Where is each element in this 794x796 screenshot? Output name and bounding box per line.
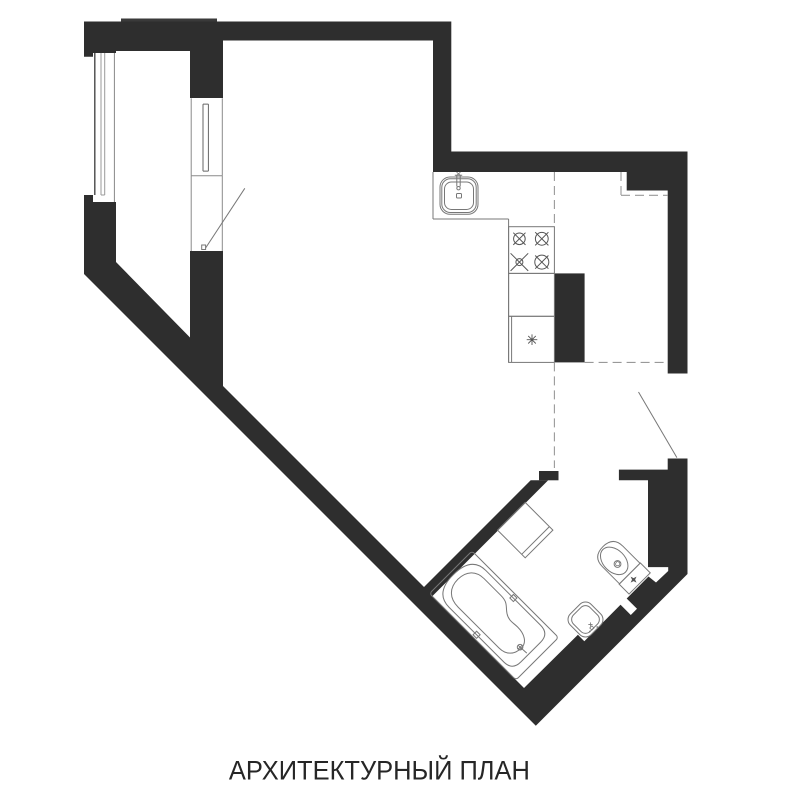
svg-text:АРХИТЕКТУРНЫЙ ПЛАН: АРХИТЕКТУРНЫЙ ПЛАН	[229, 756, 530, 786]
